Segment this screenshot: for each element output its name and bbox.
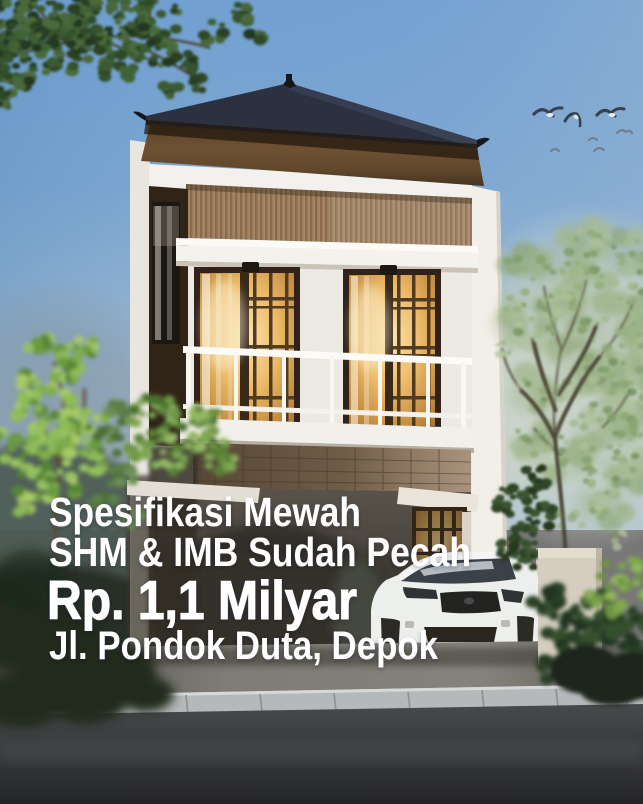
svg-text:Rp. 1,1 Milyar: Rp. 1,1 Milyar: [47, 569, 357, 631]
svg-text:Jl. Pondok Duta, Depok: Jl. Pondok Duta, Depok: [49, 624, 438, 668]
